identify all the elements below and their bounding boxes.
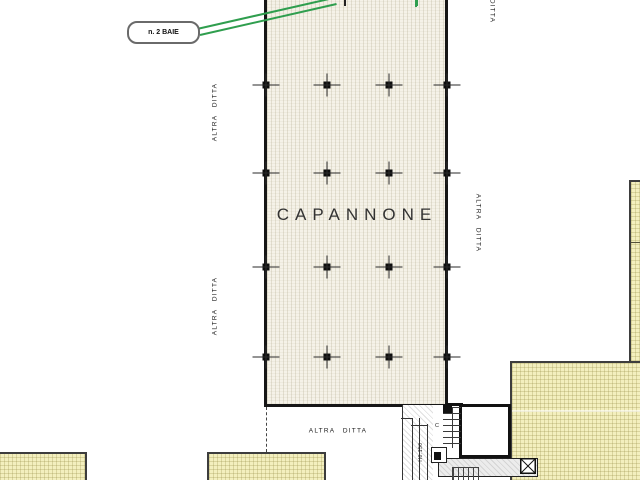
column-marker: [386, 354, 393, 361]
column-marker: [444, 354, 451, 361]
stair-run: [443, 407, 461, 448]
projection-dashed-line: [266, 407, 267, 452]
neighbor-label-right: ALTRA DITTA: [475, 194, 482, 252]
column-marker: [386, 82, 393, 89]
bay-highlight-tick: [415, 0, 417, 7]
column-marker: [324, 264, 331, 271]
column-marker: [263, 170, 270, 177]
column-marker: [444, 264, 451, 271]
warehouse-label: CAPANNONE: [277, 205, 437, 225]
column-marker: [263, 264, 270, 271]
column-marker: [444, 82, 451, 89]
stair-landing-block: [443, 405, 452, 413]
neighbor-label-top-right: DITTA: [489, 0, 496, 23]
service-wall: [412, 418, 413, 480]
small-stair: [452, 467, 479, 480]
site-plan-canvas: CAPANNONE ALTRA DITTA ALTRA DITTA ALTRA …: [0, 0, 640, 480]
bays-callout: n. 2 BAIE: [127, 21, 200, 44]
column-marker: [324, 82, 331, 89]
neighbor-label-left-upper: ALTRA DITTA: [212, 83, 219, 141]
stair-letter-label: C: [435, 423, 439, 429]
dimension-tick: [411, 425, 428, 426]
column-marker: [386, 170, 393, 177]
column-marker: [263, 82, 270, 89]
column-marker: [263, 354, 270, 361]
neighbor-label-left-lower: ALTRA DITTA: [212, 277, 219, 335]
crossed-box-icon: [520, 458, 536, 474]
ramp-height-label: H0:150: [418, 442, 424, 461]
column-marker: [444, 170, 451, 177]
annex-room: [459, 404, 511, 458]
column-marker: [324, 170, 331, 177]
elevator-shaft: [431, 447, 447, 463]
service-wall: [427, 424, 428, 480]
dimension-tick: [401, 418, 413, 419]
grid-top-tick: [344, 0, 346, 6]
column-grid: [0, 0, 640, 480]
column-marker: [324, 354, 331, 361]
column-marker: [386, 264, 393, 271]
neighbor-label-bottom: ALTRA DITTA: [309, 428, 367, 435]
